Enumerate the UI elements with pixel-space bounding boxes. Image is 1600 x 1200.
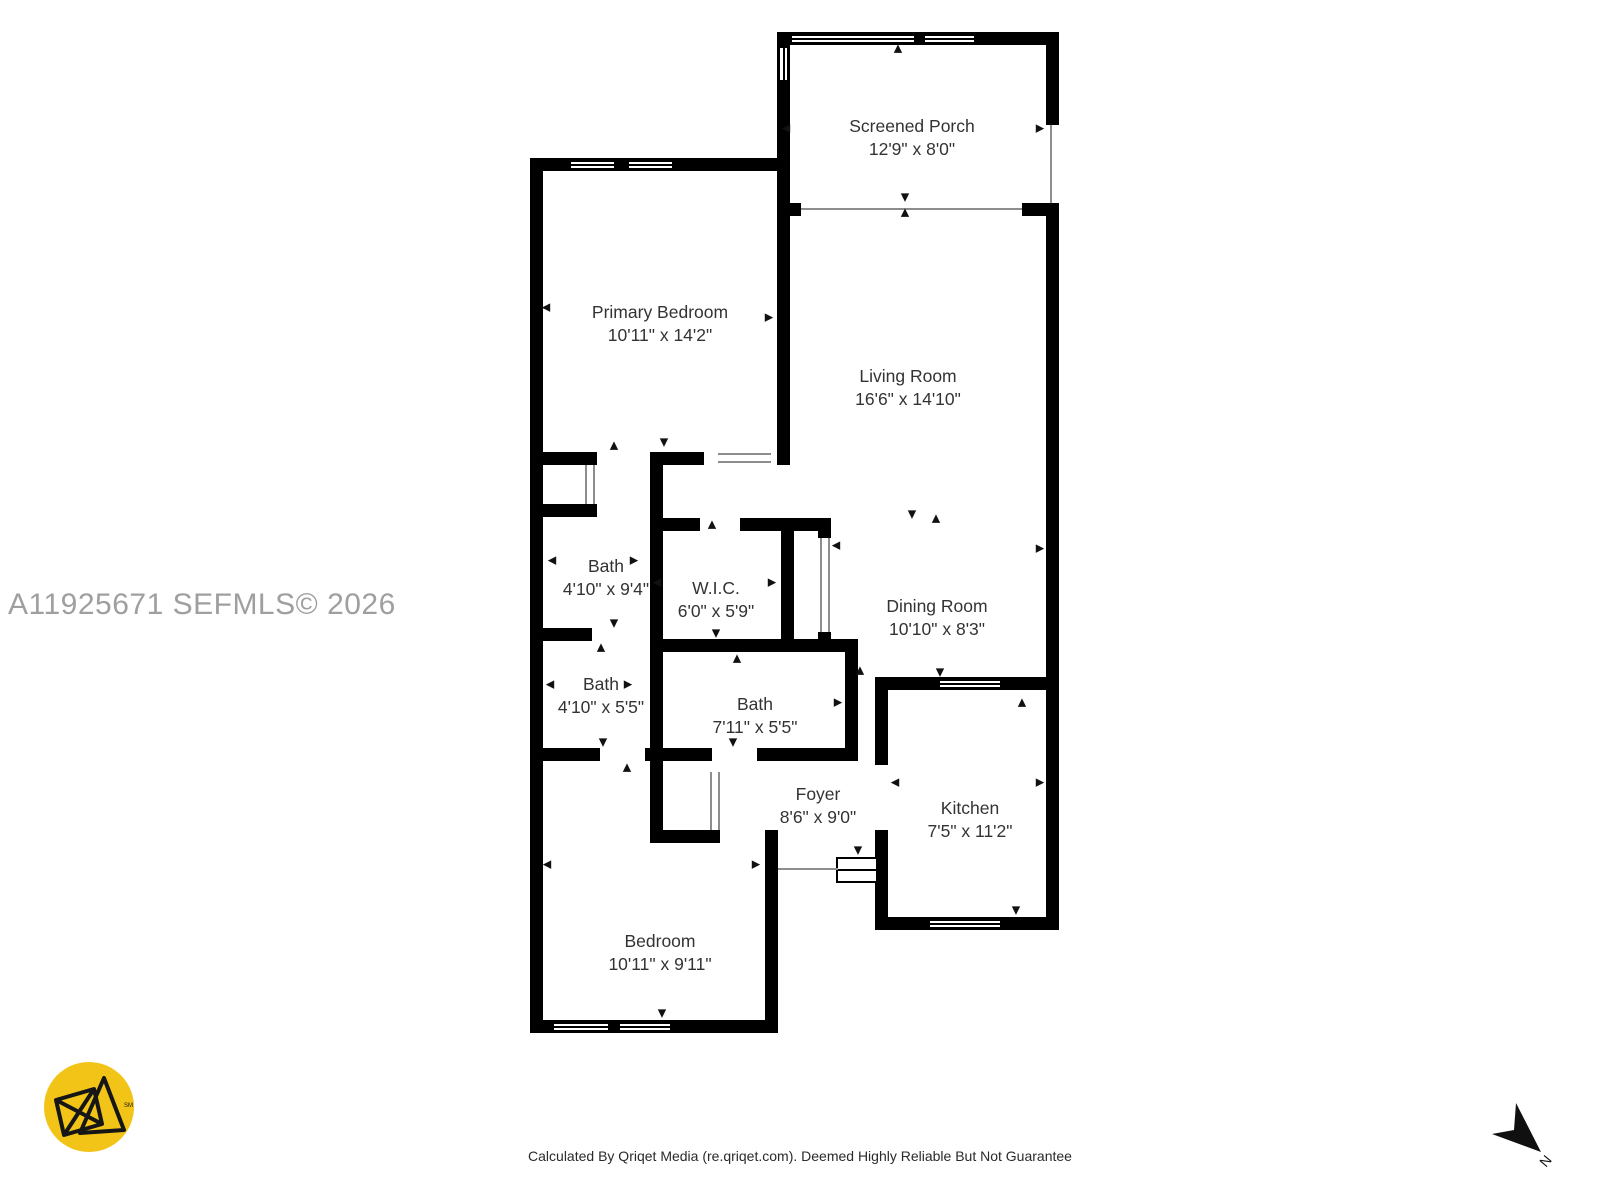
room-dimensions: 7'5" x 11'2" xyxy=(928,820,1013,843)
room-label-w-i-c: W.I.C.6'0" x 5'9" xyxy=(678,577,755,623)
wall-segment xyxy=(650,639,831,652)
wall-segment xyxy=(530,452,597,465)
wall-segment xyxy=(845,639,858,761)
room-label-bath: Bath7'11" x 5'5" xyxy=(713,693,798,739)
wall-segment xyxy=(1046,32,1059,125)
door-direction-marker: ◀ xyxy=(546,679,554,690)
wall-segment xyxy=(650,518,700,531)
room-label-bedroom: Bedroom10'11" x 9'11" xyxy=(608,930,711,976)
room-name: Bath xyxy=(558,673,644,696)
door-direction-marker: ◀ xyxy=(548,555,556,566)
door-direction-marker: ▼ xyxy=(1012,905,1020,916)
room-dimensions: 4'10" x 5'5" xyxy=(558,696,644,719)
room-dimensions: 7'11" x 5'5" xyxy=(713,716,798,739)
door-direction-marker: ▼ xyxy=(610,618,618,629)
wall-segment xyxy=(530,748,600,761)
door-direction-marker: ▼ xyxy=(901,192,909,203)
qriqet-media-logo: SM xyxy=(44,1062,134,1152)
room-label-primary-bedroom: Primary Bedroom10'11" x 14'2" xyxy=(592,301,728,347)
door-direction-marker: ▼ xyxy=(599,737,607,748)
door-direction-marker: ▶ xyxy=(1036,543,1044,554)
door-direction-marker: ▼ xyxy=(854,845,862,856)
room-name: Bath xyxy=(713,693,798,716)
wall-segment xyxy=(777,32,790,465)
wall-segment xyxy=(818,518,831,538)
room-name: Living Room xyxy=(855,365,961,388)
wall-segment xyxy=(650,830,720,843)
mls-watermark: A11925671 SEFMLS© 2026 xyxy=(8,588,396,622)
wall-segment xyxy=(765,830,778,1033)
door-direction-marker: ▲ xyxy=(901,207,909,218)
window-symbol xyxy=(618,1022,672,1032)
door-direction-marker: ▲ xyxy=(932,513,940,524)
room-label-screened-porch: Screened Porch12'9" x 8'0" xyxy=(849,115,975,161)
door-direction-marker: ▶ xyxy=(1036,777,1044,788)
room-name: Screened Porch xyxy=(849,115,975,138)
wall-segment xyxy=(875,677,888,765)
room-name: Bath xyxy=(563,555,649,578)
door-direction-marker: ◀ xyxy=(832,540,840,551)
opening-line xyxy=(593,465,595,504)
room-name: Foyer xyxy=(780,783,857,806)
door-direction-marker: ▲ xyxy=(894,43,902,54)
wall-segment xyxy=(757,748,858,761)
door-direction-marker: ◀ xyxy=(542,302,550,313)
room-name: Bedroom xyxy=(608,930,711,953)
wall-segment xyxy=(645,748,712,761)
door-direction-marker: ▼ xyxy=(712,628,720,639)
door-direction-marker: ▶ xyxy=(765,312,773,323)
door-direction-marker: ▲ xyxy=(1018,697,1026,708)
opening-line xyxy=(801,208,1022,210)
footer-disclaimer: Calculated By Qriqet Media (re.qriqet.co… xyxy=(0,1148,1600,1164)
room-label-foyer: Foyer8'6" x 9'0" xyxy=(780,783,857,829)
door-direction-marker: ◀ xyxy=(543,859,551,870)
door-direction-marker: ◀ xyxy=(782,123,790,134)
door-direction-marker: ▼ xyxy=(936,667,944,678)
room-dimensions: 10'11" x 9'11" xyxy=(608,953,711,976)
door-direction-marker: ▲ xyxy=(733,653,741,664)
window-symbol xyxy=(938,679,1002,689)
opening-line xyxy=(778,868,838,870)
opening-line xyxy=(718,453,771,455)
door-direction-marker: ◀ xyxy=(653,577,661,588)
wall-segment xyxy=(530,158,543,1033)
opening-line xyxy=(585,465,587,504)
window-symbol xyxy=(778,46,789,82)
room-name: Primary Bedroom xyxy=(592,301,728,324)
wall-segment xyxy=(781,518,794,652)
opening-line xyxy=(828,538,830,632)
wall-segment xyxy=(777,203,801,216)
window-symbol xyxy=(627,160,674,170)
window-symbol xyxy=(928,919,1002,929)
room-name: W.I.C. xyxy=(678,577,755,600)
opening-line xyxy=(710,772,712,830)
room-dimensions: 8'6" x 9'0" xyxy=(780,806,857,829)
north-arrow-icon xyxy=(1492,1103,1541,1152)
opening-line xyxy=(718,461,771,463)
room-label-bath: Bath4'10" x 9'4" xyxy=(563,555,649,601)
wall-segment xyxy=(1022,203,1059,216)
logo-trademark: SM xyxy=(124,1103,133,1109)
room-dimensions: 4'10" x 9'4" xyxy=(563,578,649,601)
opening-line xyxy=(820,538,822,632)
opening-line xyxy=(1050,125,1052,203)
door-direction-marker: ▶ xyxy=(752,859,760,870)
room-name: Dining Room xyxy=(886,595,987,618)
door-direction-marker: ▼ xyxy=(660,437,668,448)
window-symbol xyxy=(552,1022,610,1032)
door-direction-marker: ▲ xyxy=(597,642,605,653)
opening-line xyxy=(718,772,720,830)
door-direction-marker: ▲ xyxy=(708,519,716,530)
door-direction-marker: ▶ xyxy=(1036,123,1044,134)
room-label-kitchen: Kitchen7'5" x 11'2" xyxy=(928,797,1013,843)
room-name: Kitchen xyxy=(928,797,1013,820)
door-direction-marker: ◀ xyxy=(891,777,899,788)
door-direction-marker: ▶ xyxy=(768,577,776,588)
wall-segment xyxy=(530,628,592,641)
room-label-living-room: Living Room16'6" x 14'10" xyxy=(855,365,961,411)
window-symbol xyxy=(836,857,878,883)
room-label-dining-room: Dining Room10'10" x 8'3" xyxy=(886,595,987,641)
door-direction-marker: ▲ xyxy=(623,762,631,773)
wall-segment xyxy=(530,504,597,517)
door-direction-marker: ▼ xyxy=(658,1008,666,1019)
door-direction-marker: ▲ xyxy=(856,665,864,676)
room-dimensions: 6'0" x 5'9" xyxy=(678,600,755,623)
window-symbol xyxy=(569,160,616,170)
door-direction-marker: ▶ xyxy=(834,697,842,708)
door-direction-marker: ▼ xyxy=(908,509,916,520)
room-dimensions: 16'6" x 14'10" xyxy=(855,388,961,411)
room-dimensions: 10'10" x 8'3" xyxy=(886,618,987,641)
room-label-bath: Bath4'10" x 5'5" xyxy=(558,673,644,719)
north-arrow: N xyxy=(1478,1092,1568,1182)
window-symbol xyxy=(923,34,976,44)
door-direction-marker: ▲ xyxy=(610,440,618,451)
floor-plan-page: A11925671 SEFMLS© 2026 ▲◀▶▼▲◀▶▲▼◀▶▲◀▶◀▶▼… xyxy=(0,0,1600,1200)
room-dimensions: 10'11" x 14'2" xyxy=(592,324,728,347)
wall-segment xyxy=(1046,203,1059,930)
room-dimensions: 12'9" x 8'0" xyxy=(849,138,975,161)
